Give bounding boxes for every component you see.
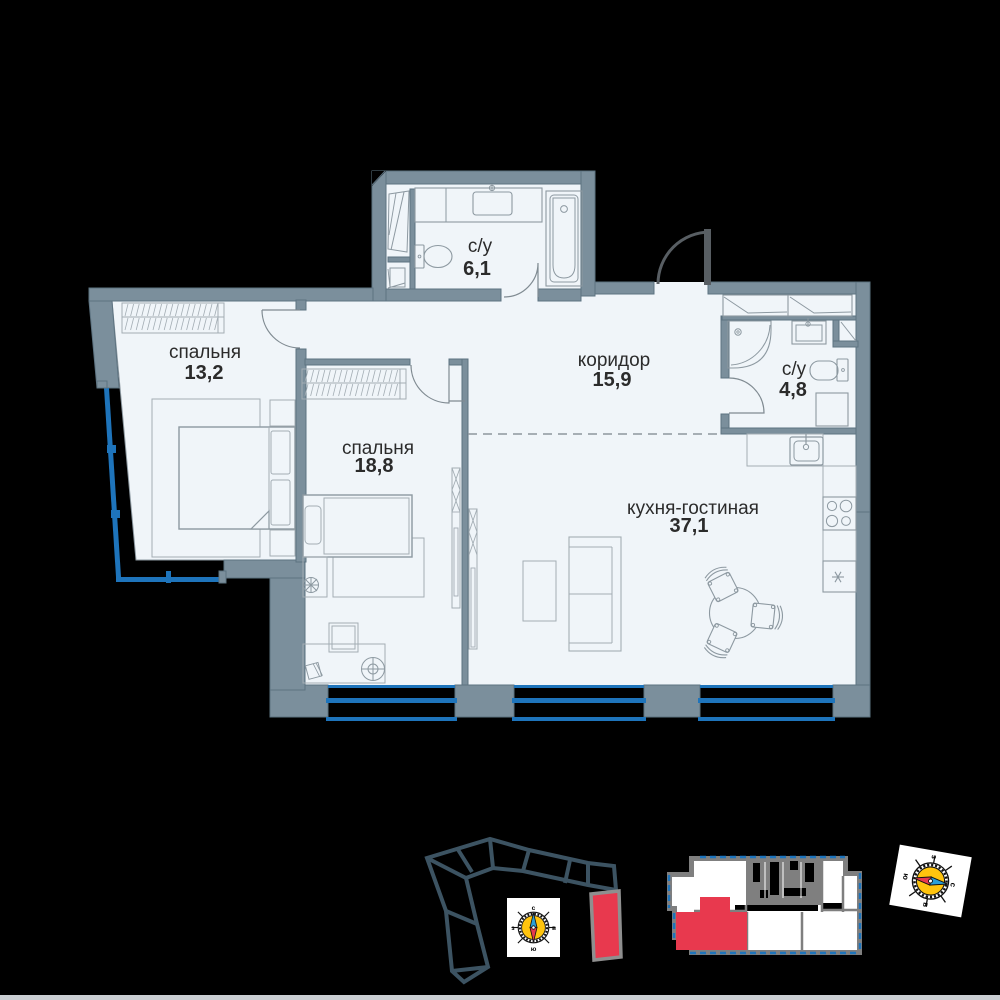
svg-text:4,8: 4,8 <box>779 379 807 401</box>
svg-text:коридор: коридор <box>578 350 651 371</box>
svg-text:с/у: с/у <box>782 359 807 380</box>
svg-text:спальня: спальня <box>169 342 241 363</box>
svg-text:с: с <box>532 905 536 912</box>
svg-text:15,9: 15,9 <box>593 369 632 391</box>
svg-text:13,2: 13,2 <box>185 362 224 384</box>
svg-text:ю: ю <box>531 946 537 953</box>
svg-text:37,1: 37,1 <box>670 515 709 537</box>
svg-text:в: в <box>552 925 556 932</box>
svg-text:с/у: с/у <box>468 236 493 257</box>
svg-text:6,1: 6,1 <box>463 258 491 280</box>
svg-text:18,8: 18,8 <box>355 455 394 477</box>
